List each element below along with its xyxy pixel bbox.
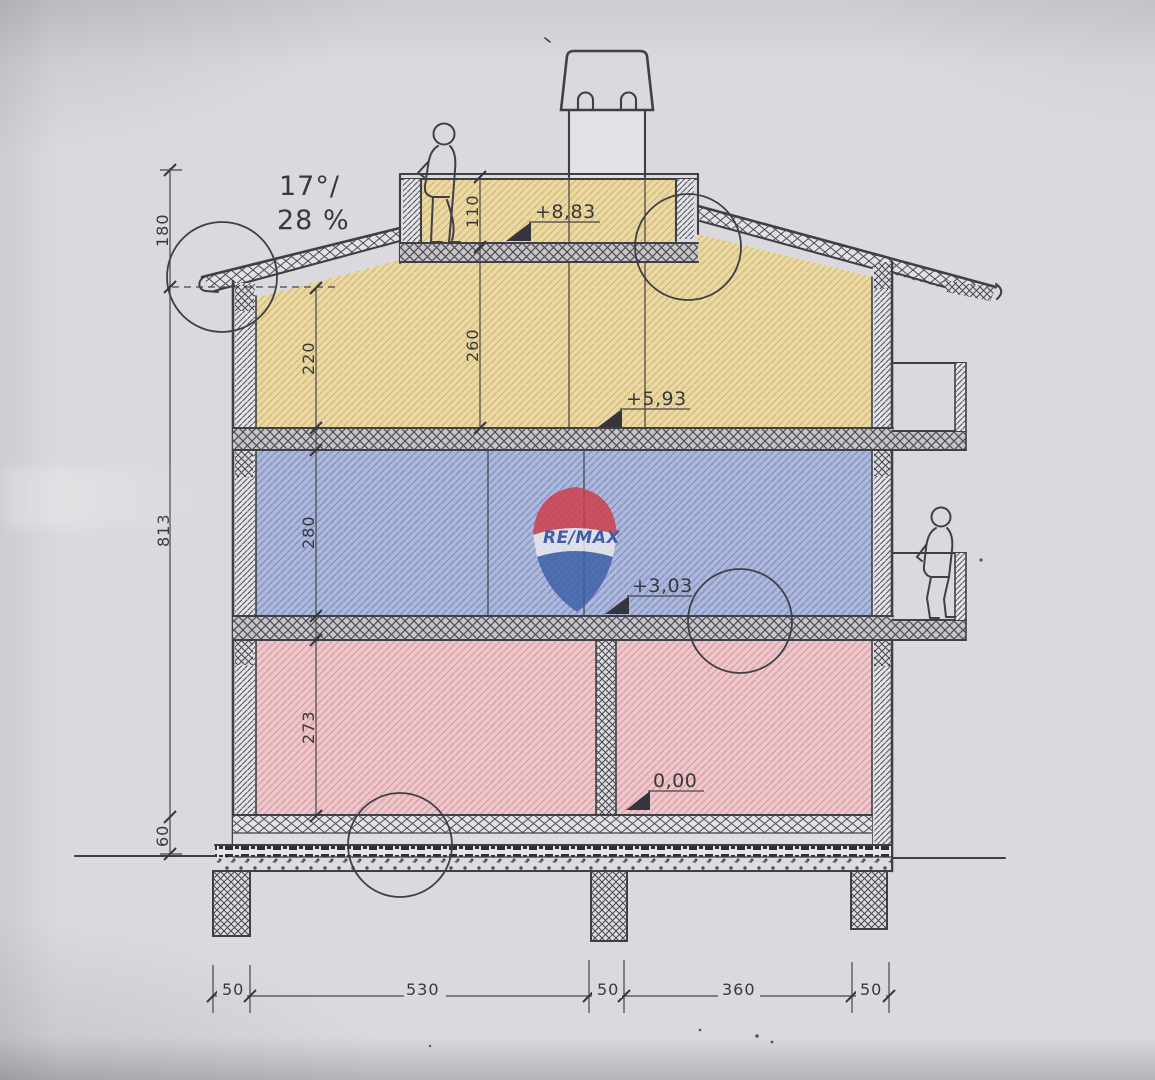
section-drawing: +8,83 +5,93 +3,03 0,00 180 813 60 220 bbox=[0, 0, 1155, 1080]
elevation-terrace-label: +8,83 bbox=[535, 201, 596, 223]
lower-loggia-post bbox=[955, 553, 966, 620]
upper-loggia-post bbox=[955, 363, 966, 431]
elevation-first-label: +3,03 bbox=[632, 575, 693, 597]
dim-260: 260 bbox=[463, 328, 482, 362]
elevation-attic-label: +5,93 bbox=[626, 388, 687, 410]
roof-pitch-percent: 28 % bbox=[277, 205, 350, 236]
dim-360: 360 bbox=[722, 980, 756, 999]
dim-60: 60 bbox=[153, 825, 172, 847]
loggias bbox=[892, 363, 966, 640]
dim-180: 180 bbox=[153, 213, 172, 247]
upper-loggia-slab bbox=[893, 431, 966, 450]
dim-50-left: 50 bbox=[222, 980, 244, 999]
gravel-layer bbox=[215, 857, 891, 871]
stray-mark bbox=[545, 38, 550, 42]
chimney-vent-right bbox=[621, 93, 636, 110]
roof-pitch-annotation: 17°/ 28 % bbox=[277, 171, 350, 236]
remax-logo-text: RE/MAX bbox=[543, 528, 620, 548]
footing-left bbox=[213, 871, 250, 936]
insulation-blocks-layer bbox=[215, 845, 891, 857]
dim-chain-bottom: 50 530 50 360 50 bbox=[207, 960, 895, 1013]
dim-50-mid: 50 bbox=[597, 980, 619, 999]
footing-right bbox=[851, 871, 887, 929]
chimney-cap bbox=[561, 51, 653, 110]
dim-220: 220 bbox=[299, 341, 318, 375]
chimney-vent-left bbox=[578, 93, 593, 110]
dim-280: 280 bbox=[299, 515, 318, 549]
membrane-layer bbox=[233, 833, 872, 845]
person-on-balcony bbox=[917, 508, 955, 619]
roof-pitch-degrees: 17°/ bbox=[279, 171, 340, 202]
first-floor-slab bbox=[233, 616, 893, 640]
screed-layer bbox=[233, 815, 872, 833]
attic-floor-slab bbox=[233, 428, 893, 450]
scanned-drawing-page: +8,83 +5,93 +3,03 0,00 180 813 60 220 bbox=[0, 0, 1155, 1080]
dim-110: 110 bbox=[463, 194, 482, 228]
right-wall bbox=[874, 262, 892, 871]
dim-50-right: 50 bbox=[860, 980, 882, 999]
footing-middle bbox=[591, 871, 627, 941]
ground-slab bbox=[75, 815, 1005, 941]
elevation-ground-label: 0,00 bbox=[653, 770, 697, 792]
dormer-wall-right bbox=[676, 179, 694, 239]
lower-loggia-slab bbox=[893, 620, 966, 640]
left-wall bbox=[235, 283, 255, 871]
terrace-slab bbox=[400, 243, 698, 262]
dim-273: 273 bbox=[299, 710, 318, 744]
attic-room-fill bbox=[256, 234, 872, 428]
dim-813: 813 bbox=[154, 513, 173, 547]
dim-530: 530 bbox=[406, 980, 440, 999]
